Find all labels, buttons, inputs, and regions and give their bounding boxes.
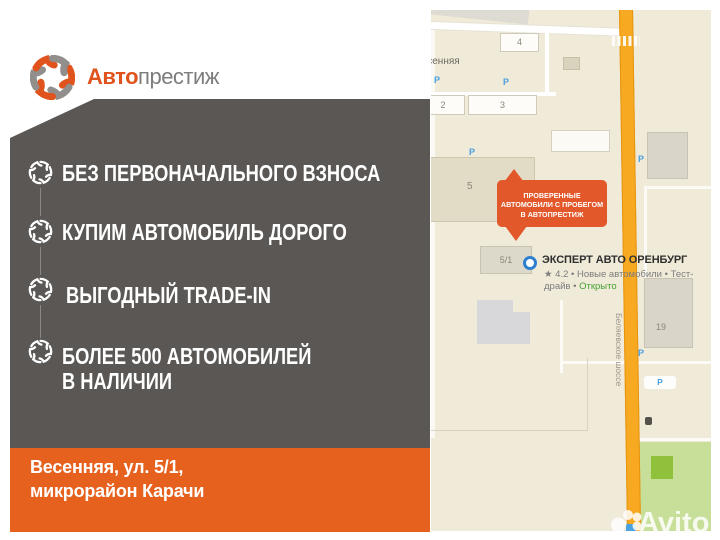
svg-text:Avito: Avito <box>638 507 709 531</box>
